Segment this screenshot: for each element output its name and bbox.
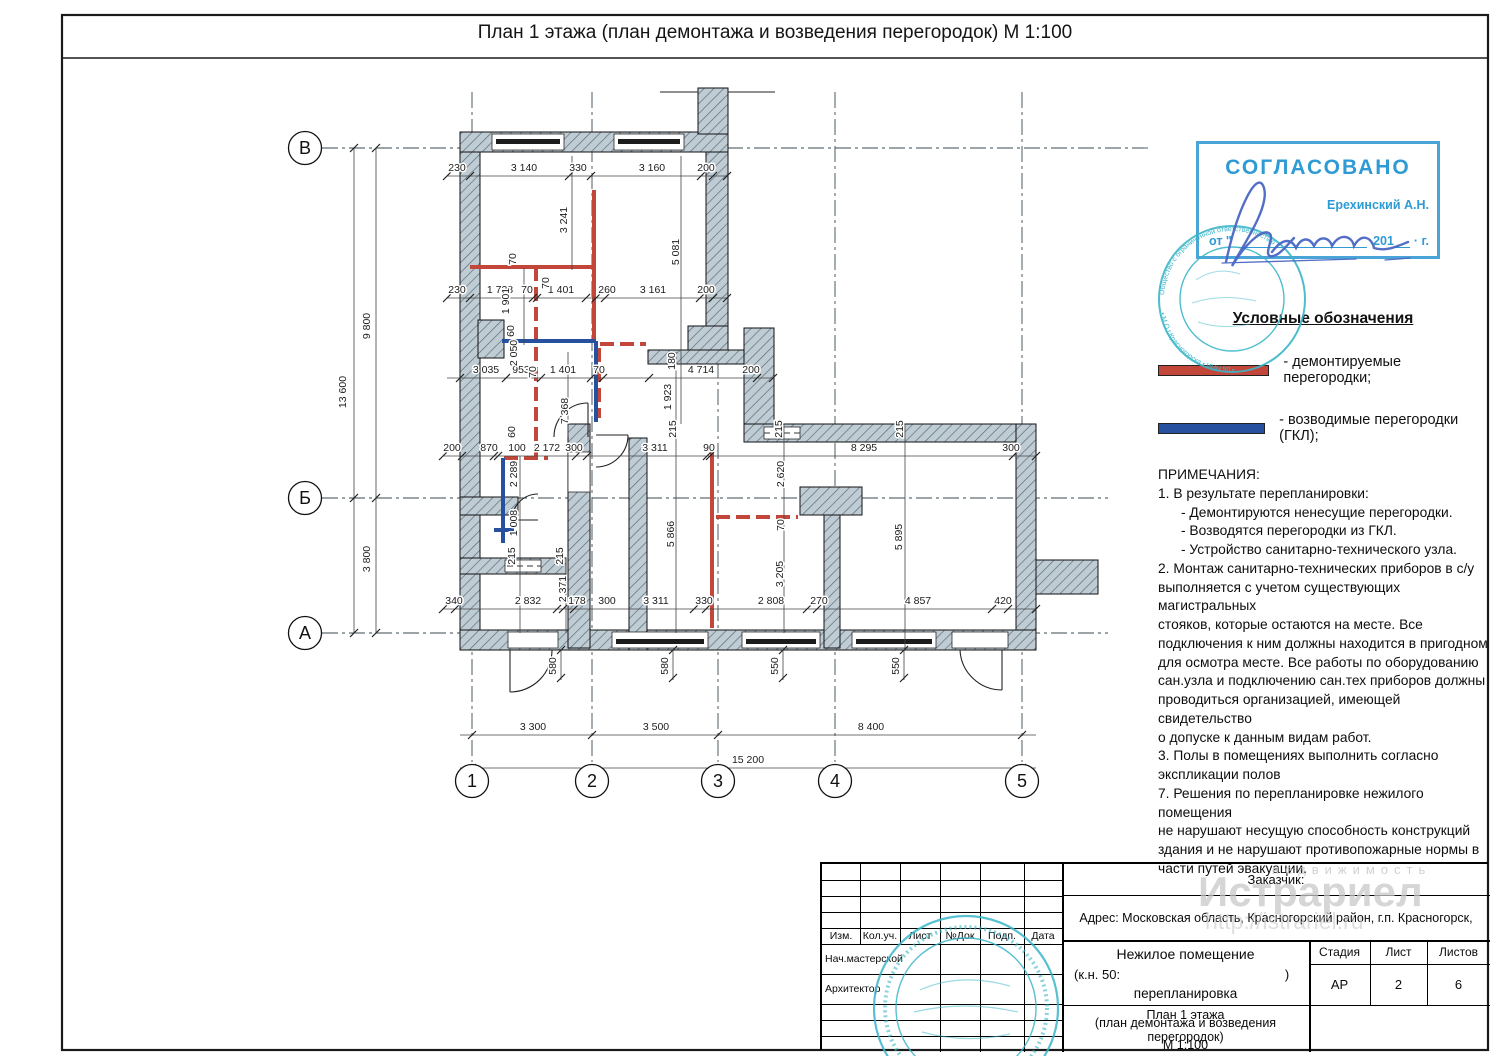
approval-stamp: СОГЛАСОВАНО Ерехинский А.Н. от " 201 · г… (1196, 141, 1440, 259)
dimension-label: 70 (527, 366, 539, 378)
dimension-label: 3 311 (643, 595, 669, 607)
dimension-label: 90 (703, 442, 715, 454)
dimension-label: 330 (695, 595, 713, 607)
axis-label: 1 (467, 771, 477, 791)
wall-opening (568, 452, 590, 492)
dimension-label: 3 205 (774, 561, 786, 587)
dimension-label: 3 311 (642, 442, 668, 454)
tb-col-koluch: Кол.уч. (860, 928, 900, 944)
dimension-label: 4 714 (688, 364, 714, 376)
dimension-label: 2 832 (515, 595, 541, 607)
dimension-label: 178 (568, 595, 586, 607)
wall (688, 326, 728, 352)
wall (478, 320, 504, 358)
dimension-label: 5 081 (670, 239, 682, 265)
date-underline (1238, 236, 1367, 248)
tb-col-podp: Подп. (980, 928, 1024, 944)
legend-heading: Условные обозначения (1158, 310, 1488, 328)
notes: ПРИМЕЧАНИЯ: 1. В результате перепланиров… (1158, 466, 1492, 879)
axis-label: 4 (830, 771, 840, 791)
dimension-label: 4 857 (905, 595, 931, 607)
dimension-label: 100 (508, 442, 526, 454)
wall (1036, 560, 1098, 594)
stage-value: АР (1309, 964, 1370, 1005)
dimension-label: 3 800 (361, 546, 373, 572)
dimension-label: 15 200 (732, 754, 764, 766)
dimension-label: 5 866 (665, 521, 677, 547)
notes-body: 1. В результате перепланировки: - Демонт… (1158, 485, 1492, 879)
object-cadnum: (к.н. 50: (1074, 964, 1194, 984)
axis-label: 2 (587, 771, 597, 791)
dimension-label: 7 368 (559, 398, 571, 424)
legend-item-label: - возводимые перегородки (ГКЛ); (1279, 412, 1488, 444)
dimension-label: 3 035 (473, 364, 499, 376)
date-suffix-label: · г. (1414, 234, 1429, 248)
dimension-label: 200 (742, 364, 760, 376)
stage-label: Стадия (1309, 940, 1370, 964)
window (616, 639, 704, 644)
dimension-label: 70 (507, 253, 519, 265)
dimension-label: 13 600 (337, 376, 349, 408)
wall (629, 438, 647, 650)
dimension-label: 1 923 (662, 384, 674, 410)
tb-row-architect: Архитектор (825, 974, 940, 1004)
dimension-label: 580 (547, 657, 559, 675)
dimension-labels: 2303 1403303 1602002301 738701 4012603 1… (337, 162, 1020, 766)
wall (824, 515, 840, 648)
date-from-label: от " (1209, 234, 1232, 248)
dimension-label: 2 050 (508, 340, 520, 366)
wall (1016, 424, 1036, 650)
dimension-label: 60 (505, 325, 517, 337)
tb-col-data: Дата (1024, 928, 1062, 944)
dimension-label: 60 (506, 426, 518, 438)
date-year-label: 201 (1373, 234, 1394, 248)
dimension-label: 1 008 (508, 510, 520, 536)
dimension-label: 300 (598, 595, 616, 607)
dimension-label: 70 (540, 277, 552, 289)
dimension-label: 2 371 (557, 576, 569, 602)
tb-col-ndok: №Док (940, 928, 980, 944)
legend-color-bar (1158, 365, 1269, 376)
dimension-label: 550 (890, 657, 902, 675)
dimension-label: 70 (593, 364, 605, 376)
tb-row-nach: Нач.мастерской (825, 944, 940, 974)
dimension-label: 8 400 (858, 721, 884, 733)
dimension-label: 2 289 (508, 461, 520, 487)
dimension-label: 270 (810, 595, 828, 607)
axis-label: Б (299, 488, 311, 508)
floor-plan (322, 88, 1148, 772)
dimension-label: 3 300 (520, 721, 546, 733)
object-name: Нежилое помещение (1062, 944, 1309, 964)
dimension-label: 230 (448, 284, 466, 296)
dimension-label: 215 (773, 420, 785, 438)
dimension-label: 3 500 (643, 721, 669, 733)
wall-opening (508, 632, 558, 648)
dimension-label: 420 (994, 595, 1012, 607)
dimension-label: 300 (1002, 442, 1020, 454)
dimension-label: 2 172 (534, 442, 560, 454)
dimension-label: 2 808 (758, 595, 784, 607)
dimension-label: 215 (554, 547, 566, 565)
wall-opening (952, 632, 1008, 648)
window (856, 639, 932, 644)
lists-label: Листов (1427, 940, 1490, 964)
door-swing (596, 435, 628, 467)
axis-label: А (299, 623, 311, 643)
door-swing (510, 650, 552, 692)
axis-label: В (299, 138, 311, 158)
dimension-label: 2 620 (775, 461, 787, 487)
tb-col-list: Лист (900, 928, 940, 944)
legend-item-label: - демонтируемые перегородки; (1283, 354, 1488, 386)
wall (800, 487, 862, 515)
tb-col-izm: Изм. (822, 928, 860, 944)
dimension-label: 200 (697, 284, 715, 296)
axis-label: 5 (1017, 771, 1027, 791)
dimension-label: 330 (569, 162, 587, 174)
axis-label: 3 (713, 771, 723, 791)
object-subtitle: перепланировка (1062, 983, 1309, 1003)
door-swing (960, 650, 1002, 690)
dimension-label: 215 (506, 547, 518, 565)
notes-heading: ПРИМЕЧАНИЯ: (1158, 466, 1492, 485)
dimension-label: 215 (667, 420, 679, 438)
dimension-label: 70 (775, 519, 787, 531)
dimension-label: 230 (448, 162, 466, 174)
list-value: 2 (1370, 964, 1427, 1005)
title-block: Изм. Кол.уч. Лист №Док Подп. Дата Нач.ма… (820, 862, 1488, 1050)
customer-label: Заказчик: (1062, 864, 1490, 895)
approved-label: СОГЛАСОВАНО (1199, 156, 1437, 180)
wall (648, 350, 756, 364)
window (496, 139, 560, 144)
approval-date-line: от " 201 · г. (1209, 234, 1429, 248)
window (746, 639, 816, 644)
dimension-label: 200 (443, 442, 461, 454)
legend-color-bar (1158, 423, 1265, 434)
dimension-label: 870 (480, 442, 498, 454)
dimension-label: 1 401 (550, 364, 576, 376)
legend-item-demolished: - демонтируемые перегородки; (1158, 354, 1488, 386)
sheet-title-3: М 1:100 (1062, 1037, 1309, 1052)
lists-value: 6 (1427, 964, 1490, 1005)
page-title: План 1 этажа (план демонтажа и возведени… (62, 22, 1488, 44)
dimension-label: 3 241 (558, 207, 570, 233)
dimension-label: 580 (659, 657, 671, 675)
dimension-label: 300 (565, 442, 583, 454)
dimension-label: 340 (445, 595, 463, 607)
dimension-label: 200 (697, 162, 715, 174)
dimension-label: 8 295 (851, 442, 877, 454)
dimension-label: 1 901 (500, 288, 512, 314)
wall (744, 328, 774, 438)
dimension-label: 550 (769, 657, 781, 675)
approver-name: Ерехинский А.Н. (1327, 198, 1429, 212)
axis-marks: ВБА12345 (289, 132, 1039, 798)
dimension-label: 3 140 (511, 162, 537, 174)
legend-item-new: - возводимые перегородки (ГКЛ); (1158, 412, 1488, 444)
address-label: Адрес: Московская область, Красногорский… (1062, 895, 1490, 940)
window (618, 139, 680, 144)
year-underline (1394, 236, 1410, 248)
dimension-label: 260 (598, 284, 616, 296)
dimension-label: 215 (894, 420, 906, 438)
dimension-label: 180 (666, 352, 678, 370)
object-cadnum-close: ) (1277, 964, 1297, 984)
dimension-label: 9 800 (361, 313, 373, 339)
dimension-label: 5 895 (893, 524, 905, 550)
list-label: Лист (1370, 940, 1427, 964)
dimension-label: 3 160 (639, 162, 665, 174)
sheet-title-2: (план демонтажа и возведения перегородок… (1062, 1022, 1309, 1037)
wall (698, 88, 728, 134)
dimension-label: 3 161 (640, 284, 666, 296)
dimension-label: 70 (521, 284, 533, 296)
legend: Условные обозначения - демонтируемые пер… (1158, 310, 1488, 444)
